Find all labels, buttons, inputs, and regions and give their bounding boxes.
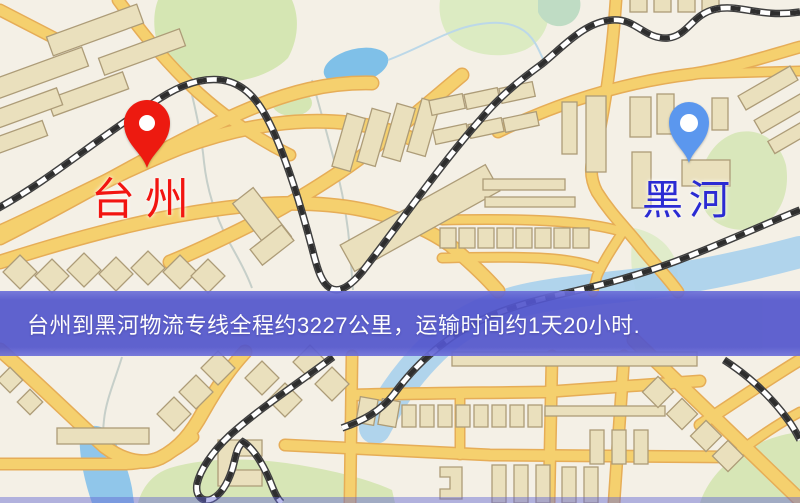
destination-pin-shape: [669, 102, 709, 163]
origin-pin-shape: [124, 100, 170, 168]
destination-marker-pin[interactable]: [666, 102, 712, 164]
origin-marker-label: 台州: [91, 178, 199, 222]
origin-marker-pin[interactable]: [120, 99, 174, 169]
origin-pin-hole: [139, 115, 155, 131]
bottom-edge-strip: [0, 497, 800, 503]
destination-pin-hole: [680, 114, 698, 132]
route-info-banner: 台州到黑河物流专线全程约3227公里，运输时间约1天20小时.: [0, 291, 800, 356]
logistics-route-map: 台州 黑河 台州到黑河物流专线全程约3227公里，运输时间约1天20小时.: [0, 0, 800, 503]
map-background: [0, 0, 800, 503]
destination-marker-label: 黑河: [642, 180, 736, 221]
route-info-text: 台州到黑河物流专线全程约3227公里，运输时间约1天20小时.: [0, 308, 640, 340]
